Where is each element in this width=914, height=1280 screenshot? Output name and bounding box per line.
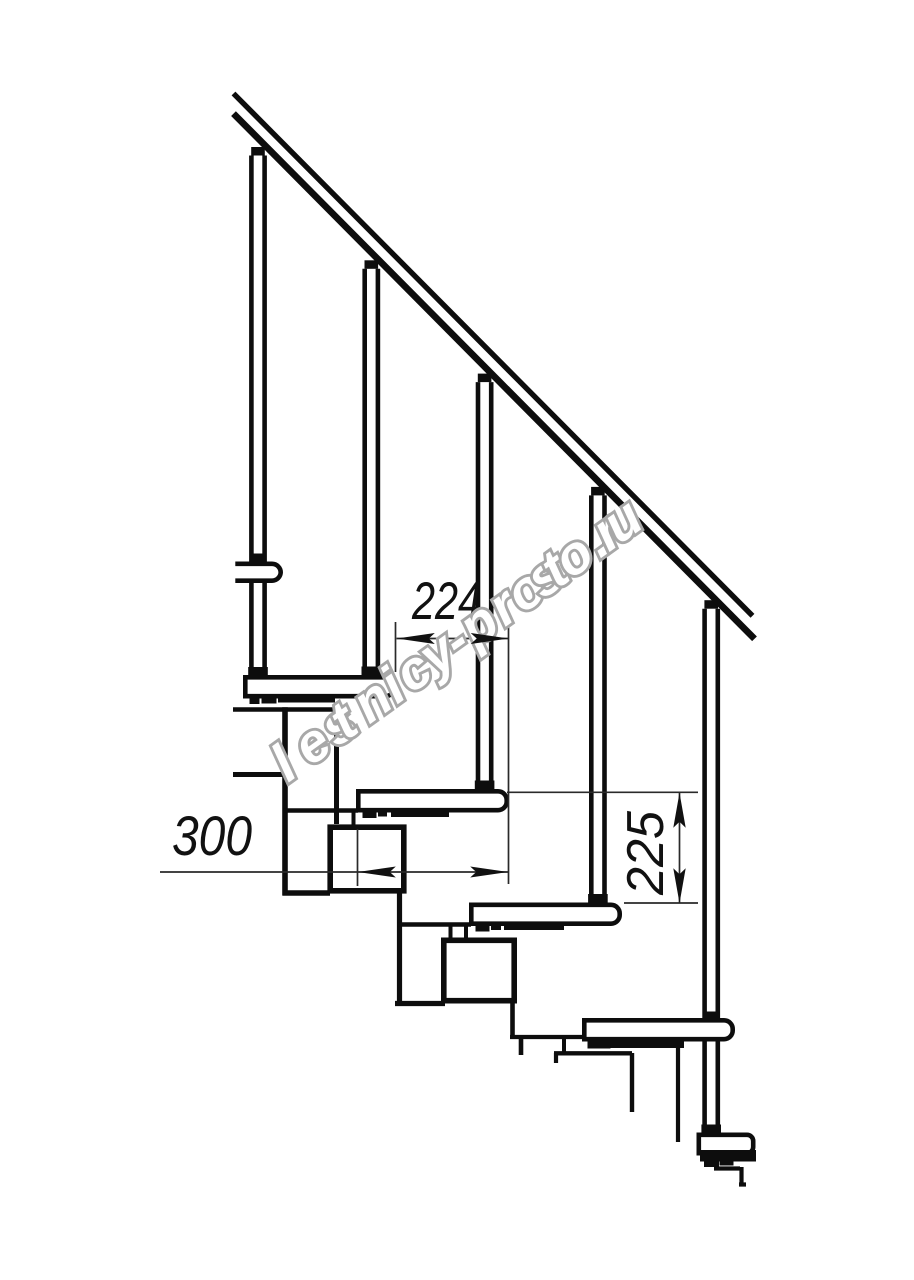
svg-text:lestnicy-prosto.ru: lestnicy-prosto.ru: [260, 487, 653, 793]
svg-text:300: 300: [172, 804, 252, 867]
svg-text:225: 225: [617, 810, 675, 896]
